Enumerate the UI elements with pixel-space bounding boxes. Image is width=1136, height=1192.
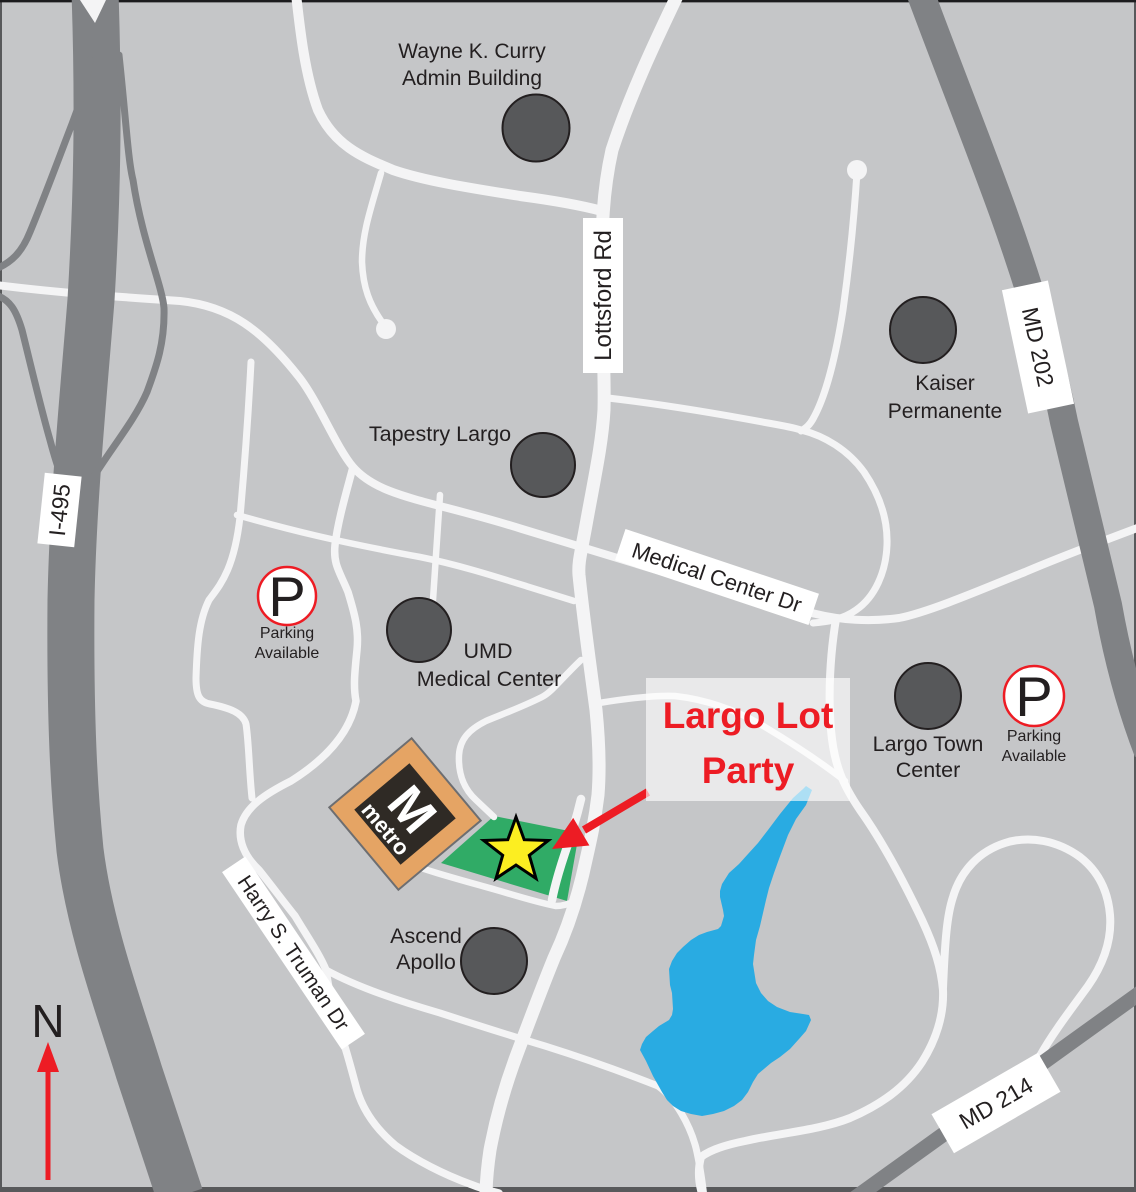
svg-text:N: N bbox=[31, 995, 64, 1047]
svg-text:Medical Center: Medical Center bbox=[417, 667, 562, 691]
svg-text:Parking: Parking bbox=[1007, 728, 1061, 745]
svg-text:Available: Available bbox=[1002, 748, 1067, 765]
svg-text:Kaiser: Kaiser bbox=[915, 372, 975, 395]
svg-text:Admin Building: Admin Building bbox=[402, 67, 542, 90]
svg-text:Lottsford Rd: Lottsford Rd bbox=[590, 230, 617, 361]
svg-text:P: P bbox=[1015, 665, 1052, 728]
svg-text:Permanente: Permanente bbox=[888, 400, 1002, 423]
svg-text:Party: Party bbox=[702, 750, 795, 791]
svg-text:Largo Town: Largo Town bbox=[873, 732, 984, 756]
svg-text:Parking: Parking bbox=[260, 625, 314, 642]
svg-text:I-495: I-495 bbox=[44, 483, 75, 538]
svg-text:P: P bbox=[268, 565, 305, 628]
svg-text:Tapestry Largo: Tapestry Largo bbox=[369, 422, 511, 446]
svg-text:Center: Center bbox=[896, 758, 961, 782]
svg-text:Largo Lot: Largo Lot bbox=[663, 695, 834, 736]
svg-text:Available: Available bbox=[255, 645, 320, 662]
svg-text:Wayne K. Curry: Wayne K. Curry bbox=[398, 40, 546, 63]
svg-text:Ascend: Ascend bbox=[390, 924, 462, 948]
svg-text:UMD: UMD bbox=[464, 639, 513, 663]
svg-text:Apollo: Apollo bbox=[396, 950, 456, 974]
